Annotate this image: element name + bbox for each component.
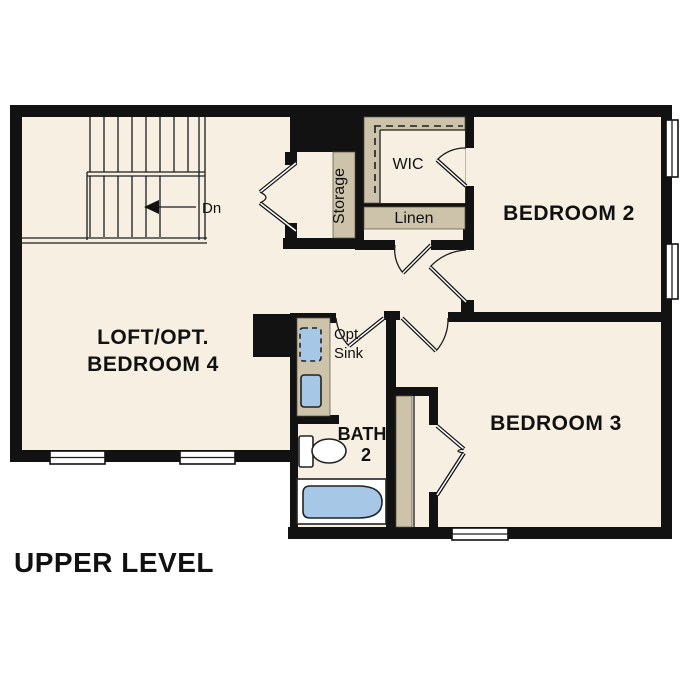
window <box>50 451 105 464</box>
bath-label-line1: BATH <box>338 424 387 444</box>
loft-label-line1: LOFT/OPT. <box>97 326 209 349</box>
linen-label: Linen <box>394 210 433 227</box>
window <box>666 120 678 177</box>
bathtub <box>297 479 386 524</box>
closet-shelf <box>396 396 412 527</box>
floor-plan-page: Dn Storage WIC Linen <box>0 0 687 687</box>
sink <box>301 375 321 407</box>
optional-sink <box>300 328 321 361</box>
linen-closet: Linen <box>364 207 465 229</box>
loft-label-line2: BEDROOM 4 <box>87 353 219 376</box>
stairs-down-label: Dn <box>202 200 221 217</box>
bedroom2-label: BEDROOM 2 <box>503 202 635 225</box>
window <box>452 528 508 540</box>
opt-sink-label-line1: Opt. <box>334 326 362 343</box>
window <box>180 451 235 464</box>
storage-label: Storage <box>331 168 348 224</box>
window <box>666 244 678 299</box>
floor-plan-drawing: Dn Storage WIC Linen <box>0 0 687 687</box>
wic-closet: WIC <box>364 117 466 203</box>
plan-title: UPPER LEVEL <box>14 547 214 578</box>
wic-label: WIC <box>392 156 423 173</box>
bedroom3-label: BEDROOM 3 <box>490 412 622 435</box>
bath-label-line2: 2 <box>361 445 371 465</box>
opt-sink-label-line2: Sink <box>334 345 364 362</box>
